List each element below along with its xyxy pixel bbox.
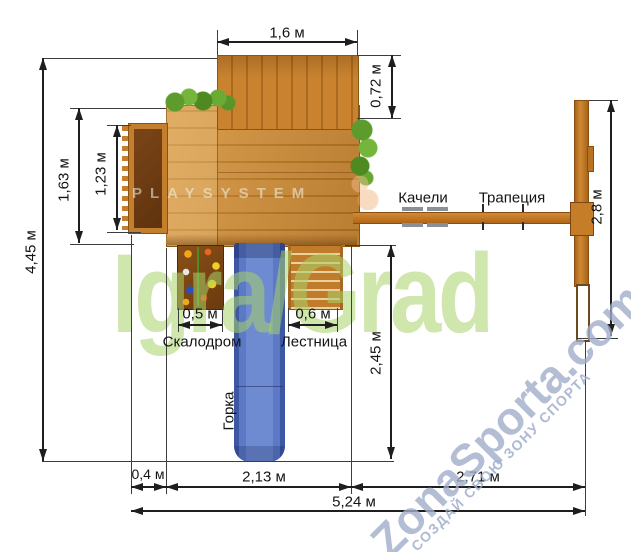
ext-line [107, 232, 141, 233]
balcony-box [128, 123, 168, 234]
arrowhead [573, 507, 585, 515]
arrowhead [154, 483, 166, 491]
platform-left-section [166, 105, 217, 245]
label-ladder: Лестница [281, 334, 347, 351]
ext-line [357, 30, 358, 55]
faded-logo-shape [350, 176, 380, 210]
arrowhead [39, 449, 47, 461]
arrowhead [387, 245, 395, 257]
trapeze-tick [482, 222, 484, 230]
arrowhead [339, 483, 351, 491]
dim-label-balcony-offset: 0,4 м [132, 466, 165, 482]
dim-label-total-width: 5,24 м [332, 494, 376, 511]
ext-line [131, 235, 132, 494]
label-climbing-wall: Скалодром [163, 334, 242, 351]
dim-label-platform-depth: 1,63 м [56, 158, 73, 202]
label-slide: Горка [221, 391, 238, 430]
a-frame-brace [587, 146, 594, 172]
arrowhead [217, 38, 229, 46]
dim-label-slide-run: 2,45 м [368, 331, 385, 375]
arrowhead [387, 447, 395, 459]
ext-line [222, 308, 223, 332]
dim-label-canopy-depth: 0,72 м [368, 64, 385, 108]
ext-line [70, 108, 166, 109]
ext-line [337, 308, 338, 332]
dim-label-platform-width: 2,13 м [242, 469, 286, 486]
arrowhead [113, 125, 121, 137]
dim-line-total-depth [42, 58, 44, 461]
arrowhead [345, 38, 357, 46]
arrowhead [607, 100, 615, 112]
dim-line-platform-width [166, 486, 351, 488]
arrowhead [388, 55, 396, 67]
canopy-roof [217, 55, 359, 130]
dim-label-top-width: 1,6 м [269, 25, 304, 42]
ext-line [166, 248, 167, 494]
ground-line [42, 461, 394, 462]
slide-seam [236, 386, 283, 387]
arrowhead [75, 108, 83, 120]
dim-line-balcony-depth [116, 125, 118, 230]
dim-line-platform-depth [78, 108, 80, 243]
slide-end-cap [234, 446, 285, 462]
arrowhead [351, 483, 363, 491]
swing-beam [353, 212, 572, 224]
arrowhead [75, 231, 83, 243]
arrowhead [39, 58, 47, 70]
swing-a-frame [574, 100, 589, 287]
dim-label-climb-width: 0,5 м [182, 306, 217, 323]
label-swings: Качели [398, 190, 448, 207]
platform-plank-seam [218, 172, 358, 173]
ext-line [357, 118, 401, 119]
dim-label-balcony-depth: 1,23 м [93, 152, 110, 196]
playground-diagram: PLAYSYSTEM Igra/Grad [0, 0, 631, 552]
arrowhead [113, 218, 121, 230]
foliage-left [163, 88, 237, 112]
dim-line-slide-run [390, 245, 392, 459]
trapeze-tick [522, 222, 524, 230]
label-trapeze: Трапеция [479, 190, 546, 207]
balcony-interior [134, 129, 162, 228]
arrowhead [131, 507, 143, 515]
arrowhead [388, 106, 396, 118]
ext-line [70, 244, 134, 245]
arrowhead [573, 483, 585, 491]
dim-label-ladder-width: 0,6 м [295, 306, 330, 323]
dim-label-frame-depth: 2,8 м [589, 189, 606, 224]
ext-line [351, 246, 352, 494]
arrowhead [131, 483, 143, 491]
dim-label-total-depth: 4,45 м [23, 230, 40, 274]
swing-hanger-top [402, 207, 448, 211]
ext-line [42, 58, 217, 59]
arrowhead [166, 483, 178, 491]
watermark-playsystem: PLAYSYSTEM [132, 185, 312, 202]
swing-hanger-bottom [402, 223, 448, 227]
